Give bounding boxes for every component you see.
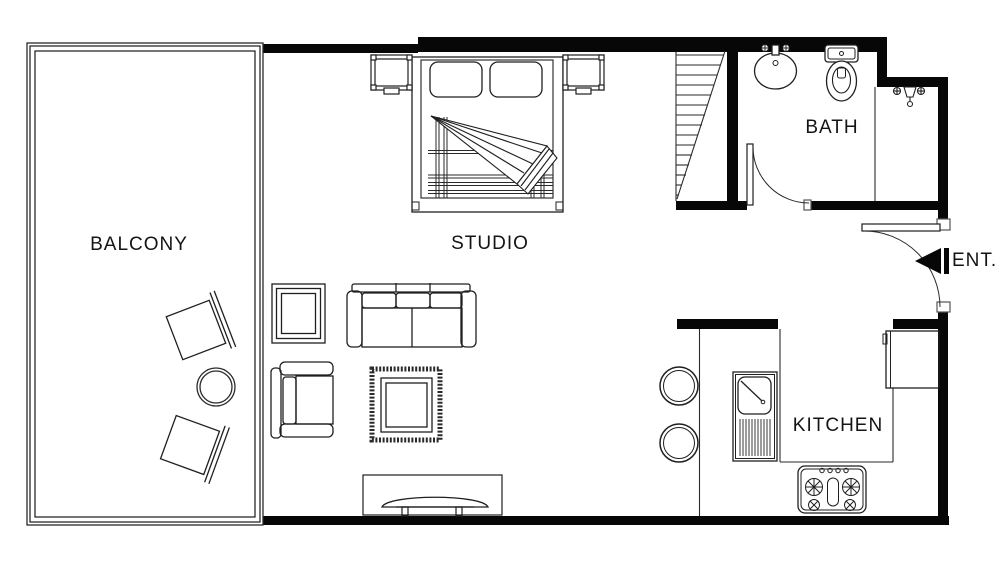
tv-console xyxy=(363,475,502,516)
bar-stool-lower xyxy=(660,424,698,462)
wall-stair-right xyxy=(727,45,738,210)
room-label-entrance: ENT. xyxy=(952,250,997,272)
wall-right-upper xyxy=(938,77,948,220)
gas-stove xyxy=(798,466,866,513)
balcony-chair-upper xyxy=(164,291,236,366)
rug-fringe xyxy=(372,369,440,440)
floor-plan: BALCONY STUDIO BATH KITCHEN ENT. xyxy=(0,0,1000,563)
bath-door-jamb xyxy=(804,200,811,210)
sofa xyxy=(347,283,476,347)
pillow-left xyxy=(430,62,482,97)
room-label-kitchen: KITCHEN xyxy=(793,415,883,437)
armchair-arm-top xyxy=(280,362,333,375)
wall-top-main-segment xyxy=(418,37,887,52)
armchair xyxy=(271,362,333,438)
sink-drainboard xyxy=(740,419,770,456)
walls xyxy=(263,37,949,525)
bath-door-swing-arc xyxy=(753,147,809,203)
wall-bath-bottom xyxy=(810,201,948,210)
armchair-back xyxy=(271,368,281,438)
armchair-arm-bottom xyxy=(280,424,333,437)
room-label-bath: BATH xyxy=(805,117,858,139)
toilet xyxy=(825,45,858,101)
sofa-back xyxy=(352,284,470,292)
refrigerator xyxy=(883,331,939,388)
balcony-round-table xyxy=(197,368,235,406)
wall-shower-niche-top xyxy=(877,77,948,87)
bath-door xyxy=(747,144,811,210)
staircase xyxy=(676,51,725,201)
bath-door-leaf xyxy=(747,144,753,205)
entrance-jamb-bottom xyxy=(937,302,950,312)
wall-stair-bottom xyxy=(676,201,747,210)
nightstand-right xyxy=(563,55,604,94)
nightstand-left xyxy=(371,55,412,94)
armchair-seat xyxy=(296,376,333,424)
bar-stool-upper xyxy=(660,367,698,405)
shower-head-icon xyxy=(904,87,916,97)
area-rug-with-coffee-table xyxy=(372,369,440,440)
room-label-studio: STUDIO xyxy=(451,233,529,255)
tv-screen xyxy=(382,497,488,507)
pillow-right xyxy=(490,62,542,97)
room-label-balcony: BALCONY xyxy=(90,234,188,256)
floor-plan-drawing xyxy=(0,0,1000,563)
double-bed xyxy=(412,57,563,212)
entrance-door-leaf xyxy=(862,224,940,231)
sofa-arm-left xyxy=(347,291,362,347)
sink-faucet-arm xyxy=(741,381,762,401)
wall-top-left-segment xyxy=(263,44,418,53)
balcony-railing xyxy=(27,43,263,525)
balcony-chair-lower xyxy=(158,409,229,484)
entrance-door-swing-arc xyxy=(864,231,940,307)
sofa-arm-right xyxy=(461,291,476,347)
wall-kitchen-top-left xyxy=(677,319,778,329)
shower xyxy=(875,87,925,201)
kitchen-sink xyxy=(733,372,777,461)
sink-faucet xyxy=(772,45,779,55)
bar-stools xyxy=(660,367,698,462)
wall-bottom xyxy=(263,516,949,525)
entry-arrow-icon xyxy=(915,248,949,274)
side-table xyxy=(272,284,325,343)
wall-kitchen-top-right xyxy=(893,319,948,329)
